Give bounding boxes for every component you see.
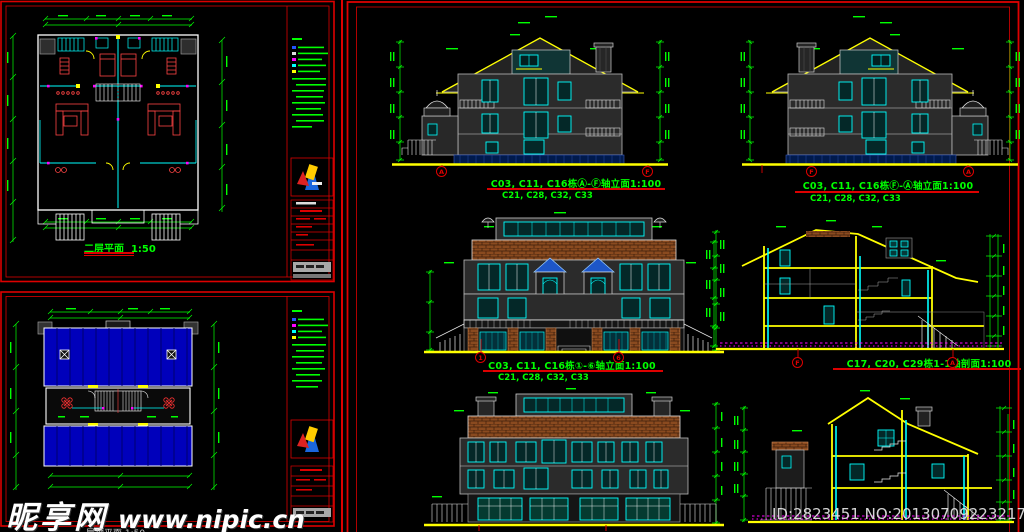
drawing-subtitle-1: C21, C28, C32, C33: [502, 191, 593, 201]
grid-bubble-a3: A: [947, 357, 958, 368]
plan-title-underline-2: [84, 255, 134, 256]
grid-bubble-f2: F: [806, 166, 817, 177]
watermark-url: www.nipic.cn: [118, 505, 305, 532]
drawing-subtitle-2: C21, C28, C32, C33: [810, 194, 901, 204]
legend-notes: [292, 310, 328, 388]
title-underline-2: [795, 191, 979, 193]
title-underline-3: [483, 370, 663, 372]
grid-bubble-a2: A: [963, 166, 974, 177]
watermark: 昵享网www.nipic.cn: [6, 492, 305, 532]
title-underline-4: [833, 368, 1021, 370]
drawing-title-2: C03, C11, C16栋Ⓕ-Ⓐ轴立面1:100: [798, 178, 978, 192]
grid-bubble-1: 1: [475, 352, 486, 363]
section-1-1-drawing: [706, 220, 1004, 361]
title-block-logo: [291, 420, 333, 458]
front-elevation-drawing: [424, 212, 724, 352]
roof-plan-drawing: [38, 321, 198, 466]
legend-notes: [292, 38, 328, 128]
grid-bubble-a: A: [436, 166, 447, 177]
rear-elevation-drawing: [424, 388, 724, 531]
drawing-subtitle-3: C21, C28, C32, C33: [498, 373, 589, 383]
left-top-sheet-graphics: [0, 0, 336, 287]
title-underline-1: [487, 188, 665, 190]
plan-title-underline: [84, 252, 134, 254]
roof-plan-label-partial: 屋顶平面 1:50: [86, 526, 145, 532]
floor-plan-drawing: [38, 35, 198, 240]
cad-drawing-page: 二层平面 1:50: [0, 0, 1024, 532]
plan-scale: 1:50: [131, 244, 156, 255]
right-sheet-graphics: [344, 0, 1024, 532]
sheet-divider-line: [341, 0, 343, 532]
watermark-id: ID:2823451 NO:20130709223217819000: [772, 505, 1024, 523]
grid-bubble-f: F: [642, 166, 653, 177]
side-elevation-mirrored: [741, 16, 1020, 173]
grid-bubble-f3: F: [792, 357, 803, 368]
section-2-drawing: [734, 390, 1014, 522]
side-elevation-drawing: [390, 16, 669, 173]
grid-bubble-6: 6: [613, 352, 624, 363]
title-block-logo: [291, 158, 333, 196]
